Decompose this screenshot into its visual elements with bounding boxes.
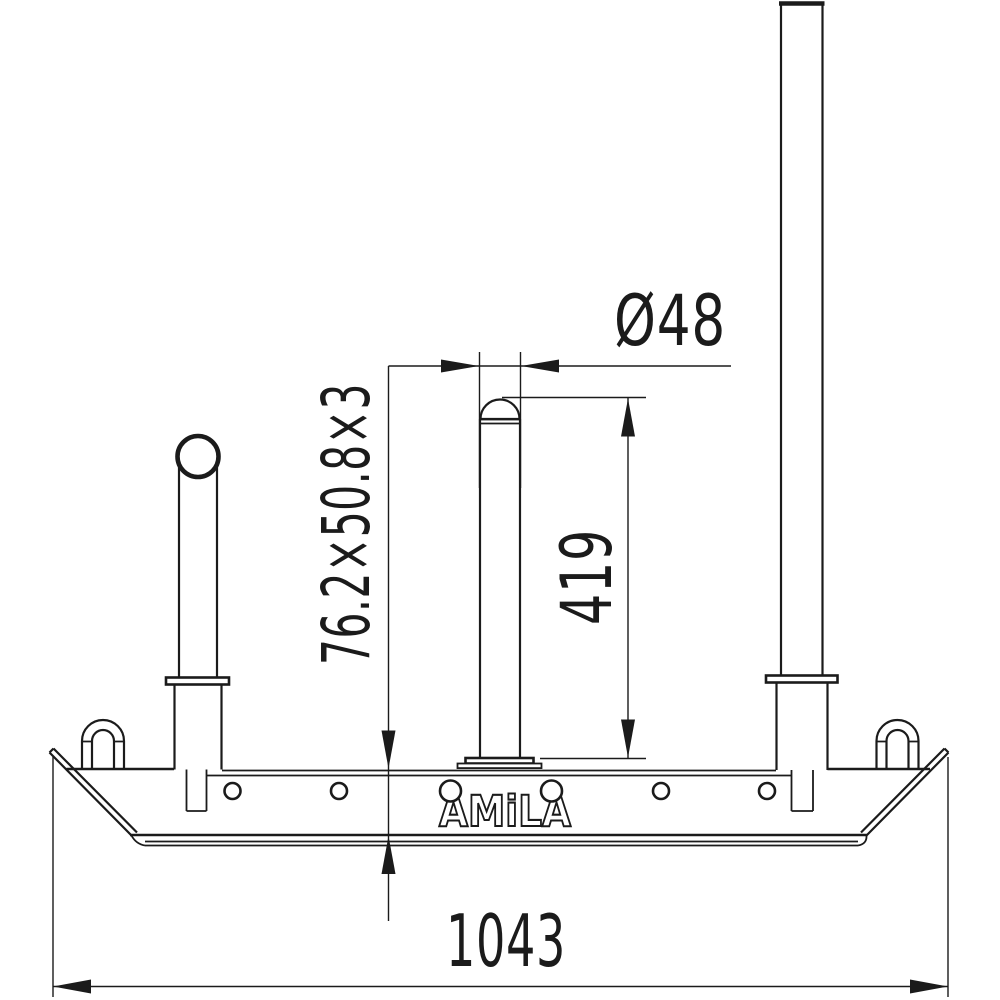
brand-logo: AMiLA bbox=[439, 781, 572, 838]
diameter-arrow-right bbox=[521, 360, 559, 373]
drawing-canvas: Ø48 76.2×50.8×3 419 1043 AMiLA bbox=[0, 0, 1000, 1000]
right-tow-hook bbox=[877, 720, 919, 770]
tall-post-tube bbox=[781, 3, 823, 676]
base-right-runner bbox=[861, 749, 949, 837]
brand-logo-ring-right bbox=[541, 781, 562, 802]
bolt-hole-3 bbox=[653, 783, 669, 799]
height-arrow-down bbox=[621, 720, 635, 758]
bolt-hole-4 bbox=[759, 783, 775, 799]
middle-post-dome-cap bbox=[481, 400, 520, 419]
left-post-tang bbox=[187, 770, 207, 812]
height-arrow-up bbox=[621, 399, 635, 437]
bolt-hole-1 bbox=[225, 783, 241, 799]
technical-drawing: Ø48 76.2×50.8×3 419 1043 AMiLA bbox=[0, 0, 1000, 1000]
base-bottom-plate bbox=[132, 836, 867, 846]
dim-label-height: 419 bbox=[546, 529, 628, 625]
dim-label-length: 1043 bbox=[446, 899, 566, 983]
middle-post-base-pad bbox=[458, 764, 542, 769]
dimension-post-diameter: Ø48 bbox=[389, 280, 732, 373]
left-post-top-ring bbox=[178, 436, 219, 477]
middle-post bbox=[458, 352, 542, 768]
length-arrow-left bbox=[53, 980, 91, 994]
brand-logo-ring-left bbox=[440, 781, 461, 802]
tall-post-flange bbox=[766, 676, 838, 683]
middle-post-tube bbox=[480, 419, 520, 758]
left-post bbox=[166, 436, 229, 811]
dim-label-profile: 76.2×50.8×3 bbox=[308, 383, 385, 665]
tall-post-sleeve bbox=[777, 683, 828, 771]
dimension-post-height: 419 bbox=[502, 398, 646, 759]
length-arrow-right bbox=[910, 980, 948, 994]
middle-post-cap-seam bbox=[481, 420, 520, 424]
dim-label-diameter: Ø48 bbox=[614, 280, 726, 362]
left-post-sleeve bbox=[175, 685, 222, 770]
base-top-inner-edges bbox=[207, 771, 792, 776]
left-post-flange bbox=[166, 678, 229, 685]
diameter-arrow-left bbox=[441, 360, 479, 373]
left-tow-hook bbox=[82, 720, 124, 770]
left-post-tube bbox=[179, 462, 217, 678]
dimension-base-profile: 76.2×50.8×3 bbox=[308, 366, 396, 921]
tall-post-tang bbox=[792, 770, 814, 811]
bolt-hole-2 bbox=[331, 783, 347, 799]
right-tall-post bbox=[766, 3, 838, 812]
profile-arrow-down bbox=[382, 731, 396, 769]
